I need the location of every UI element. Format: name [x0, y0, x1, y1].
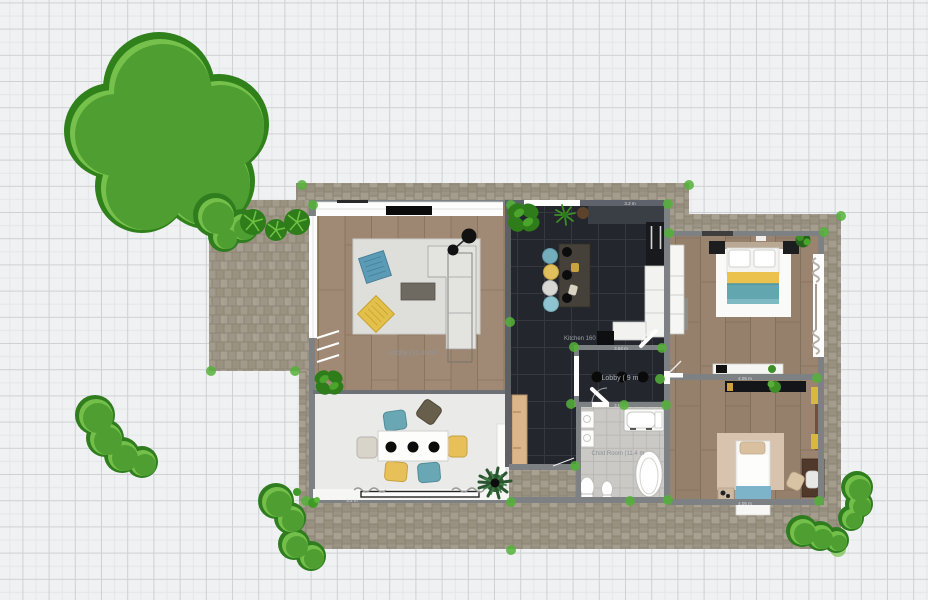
svg-text:Kitchen 160: Kitchen 160	[564, 336, 596, 342]
svg-text:Child Room (11.4 m: Child Room (11.4 m	[592, 451, 645, 457]
svg-text:4.05 m: 4.05 m	[738, 501, 752, 506]
svg-text:Lobby (31.4 m²): Lobby (31.4 m²)	[388, 350, 437, 357]
svg-text:3.64 m: 3.64 m	[614, 346, 628, 351]
svg-text:3.2 m: 3.2 m	[624, 201, 636, 206]
svg-text:4.05 m: 4.05 m	[738, 376, 752, 381]
svg-text:Lobby ( 9 m: Lobby ( 9 m	[602, 375, 639, 382]
svg-text:5.4 m: 5.4 m	[346, 498, 358, 503]
